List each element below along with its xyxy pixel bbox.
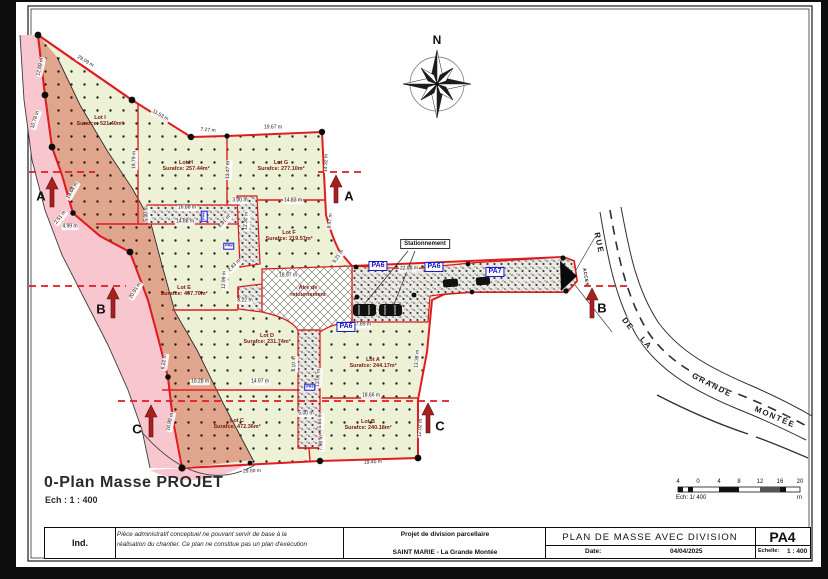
dimension-label: 8.47 m — [327, 212, 335, 230]
dimension-label: 5.00 m — [144, 205, 150, 222]
lot-surface: Surafce: 240.18m² — [344, 425, 391, 431]
pa-marker: PA7 — [485, 267, 504, 277]
pa-marker: PA6 — [424, 262, 443, 272]
dimension-label: 16.88 m — [177, 205, 197, 211]
lot-surface: Surafce: 521.40m² — [76, 121, 123, 127]
dimension-label: 8.10 m — [292, 355, 298, 372]
dimension-label: 20.91 m — [128, 281, 143, 301]
titleblock-disclaimer: Pièce administratif conceptuel ne pouvan… — [117, 530, 343, 550]
dimension-label: 29.00 m — [242, 469, 262, 475]
titleblock-divider — [115, 528, 116, 558]
pa-marker: PA6 — [368, 261, 387, 271]
dimension-label: 13.38 m — [414, 349, 421, 369]
dimension-label: 19.79 m — [132, 150, 138, 170]
dimension-label: 6.22 m — [161, 353, 169, 371]
lot-label: Lot HSurafce: 257.44m² — [162, 160, 209, 172]
road-annotation: servitude — [394, 283, 415, 290]
section-letter: C — [132, 422, 141, 437]
section-letter: A — [344, 189, 353, 204]
scalebar-tick: 4 — [676, 479, 679, 485]
pa-marker: PA6 — [201, 210, 208, 221]
dimension-label: 10.28 m — [190, 379, 210, 385]
lot-surface: Surafce: 277.10m² — [257, 166, 304, 172]
dimension-label: 14.97 m — [250, 379, 270, 385]
street-name-word: DE — [620, 316, 636, 333]
street-name-word: LA — [638, 335, 654, 351]
lot-surface: Surafce: 244.17m² — [349, 363, 396, 369]
dimension-label: 7.27 m — [199, 128, 217, 135]
street-name-word: MONTÉE — [753, 404, 796, 429]
dimension-label: 13.47 m — [226, 160, 232, 180]
street-name-word: GRANDE — [691, 371, 734, 399]
dimension-label: 12.99 m — [222, 270, 228, 290]
dimension-label: 11.53 m — [150, 109, 170, 124]
dimension-label: 16.99 m — [166, 412, 176, 433]
lot-label: Lot FSurafce: 219.57m² — [265, 230, 312, 242]
titleblock-doc-title: PLAN DE MASSE AVEC DIVISION — [545, 530, 755, 545]
titleblock-divider — [343, 528, 344, 558]
titleblock-sheet-code: PA4 — [755, 528, 810, 545]
titleblock-divider — [545, 545, 810, 546]
scalebar-tick: 8 — [737, 479, 740, 485]
dimension-label: 14.88 m — [175, 219, 195, 225]
dimension-label: 9.21 m — [332, 248, 346, 265]
lot-label: Lot ESurafce: 467.70m² — [160, 285, 207, 297]
dimension-label: 8.91 m — [217, 214, 233, 231]
dimension-label: 19.64 m — [66, 181, 81, 201]
dimension-label: 14.83 m — [283, 198, 303, 204]
disclaimer-line1: Pièce administratif conceptuel ne pouvan… — [117, 530, 343, 540]
scalebar-tick: 0 — [696, 479, 699, 485]
lot-label: Lot ASurafce: 244.17m² — [349, 357, 396, 369]
dimension-label: 8.22 m — [236, 298, 253, 304]
dimension-label: 4.99 m — [61, 224, 78, 230]
scalebar-tick: 16 — [777, 479, 784, 485]
scalebar-tick: 4 — [717, 479, 720, 485]
lot-surface: Surafce: 231.74m² — [243, 339, 290, 345]
titleblock-date-value: 04/04/2025 — [670, 548, 703, 555]
titleblock-scale-value: 1 : 400 — [787, 548, 807, 555]
dimension-label: 29.09 m — [75, 54, 95, 69]
title-block: Ind. Pièce administratif conceptuel ne p… — [44, 527, 811, 559]
lot-label: Lot GSurafce: 277.10m² — [257, 160, 304, 172]
titleblock-ind: Ind. — [45, 528, 115, 558]
plan-sheet: N Stationnement Aire de retournement ACC… — [0, 0, 828, 579]
lot-label: Lot ISurafce: 521.40m² — [76, 115, 123, 127]
lot-surface: Surafce: 257.44m² — [162, 166, 209, 172]
section-letter: C — [435, 419, 444, 434]
label-overlay: 12.69 m29.09 m11.53 m7.27 m19.67 m19.79 … — [0, 0, 828, 579]
section-letter: B — [597, 301, 606, 316]
dimension-label: 12.30 m — [244, 211, 251, 231]
titleblock-project-line1: Projet de division parcellaire — [345, 531, 545, 538]
page-edge — [821, 0, 828, 579]
road-annotation: passage — [514, 277, 534, 286]
dimension-label: 18.66 m — [361, 393, 381, 399]
page-edge — [0, 0, 16, 579]
titleblock-scale-label: Echelle: — [758, 548, 779, 554]
dimension-label: 13.06 m — [316, 368, 323, 388]
section-letter: A — [36, 189, 45, 204]
lot-label: Lot DSurafce: 231.74m² — [243, 333, 290, 345]
dimension-label: 22.88 m — [399, 266, 419, 272]
pa-marker: PA6 — [223, 243, 234, 250]
dimension-label: 7.98 m — [319, 434, 325, 451]
page-edge — [0, 0, 828, 2]
dimension-label: 12.02 m — [417, 418, 424, 438]
scalebar-tick: 20 — [797, 479, 804, 485]
titleblock-date-label: Date: — [585, 548, 601, 555]
lot-surface: Surafce: 467.70m² — [160, 291, 207, 297]
page-edge — [0, 567, 828, 579]
scalebar-tick: 12 — [757, 479, 764, 485]
pa-marker: PA6 — [336, 322, 355, 332]
dimension-label: 14.32 m — [324, 153, 330, 173]
section-letter: B — [96, 302, 105, 317]
lot-surface: Surafce: 472.36m² — [213, 424, 260, 430]
dimension-label: 19.67 m — [263, 125, 283, 131]
pa-marker: PA6 — [304, 384, 315, 391]
dimension-label: 5.94 m — [318, 412, 324, 429]
dimension-label: 3.00 m — [231, 198, 248, 204]
dimension-label: 2.83 m — [227, 258, 243, 274]
dimension-label: 12.69 m — [36, 57, 46, 78]
dimension-label: 5.00 m — [297, 411, 314, 417]
street-name-word: RUE — [592, 232, 605, 255]
disclaimer-line2: réalisation du chantier. Ce plan ne cons… — [117, 540, 343, 550]
titleblock-project-line2: SAINT MARIE - La Grande Montée — [345, 549, 545, 556]
lot-label: Lot CSurafce: 472.36m² — [213, 418, 260, 430]
dimension-label: 18.97 m — [278, 273, 298, 279]
lot-label: Lot BSurafce: 240.18m² — [344, 419, 391, 431]
dimension-label: 10.78 m — [30, 110, 41, 131]
dimension-label: 19.40 m — [363, 460, 383, 467]
lot-surface: Surafce: 219.57m² — [265, 236, 312, 242]
